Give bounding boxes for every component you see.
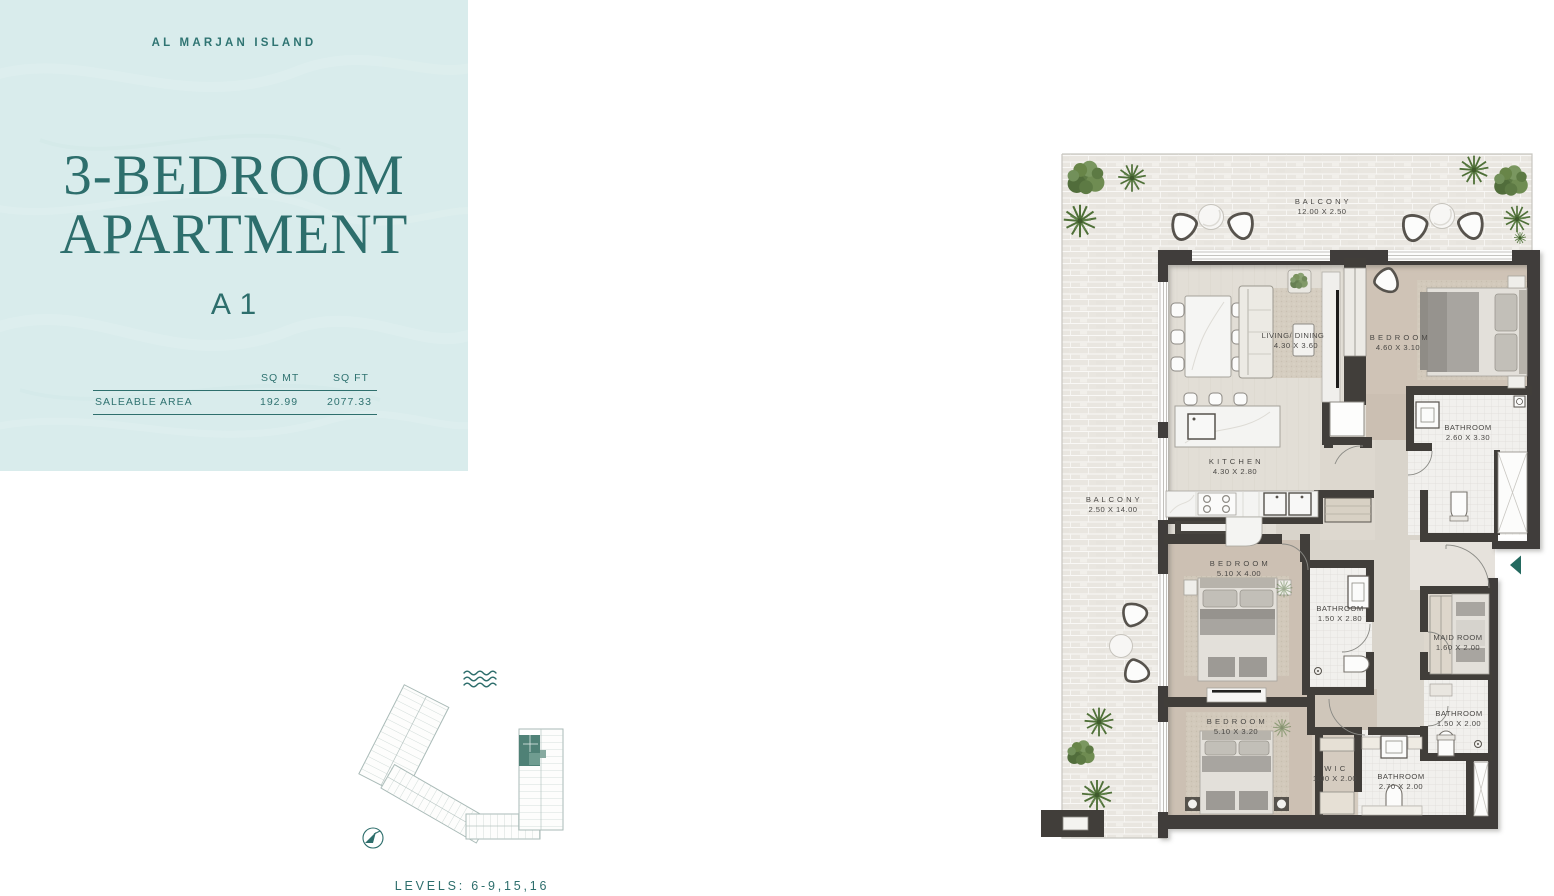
- svg-text:B A L C O N Y: B A L C O N Y: [1295, 197, 1349, 206]
- svg-text:BATHROOM: BATHROOM: [1377, 772, 1424, 781]
- svg-text:MAID ROOM: MAID ROOM: [1433, 633, 1482, 642]
- svg-text:2.70 X 2.00: 2.70 X 2.00: [1379, 782, 1423, 791]
- svg-text:B E D R O O M: B E D R O O M: [1207, 717, 1265, 726]
- svg-text:1.60 X 2.00: 1.60 X 2.00: [1436, 643, 1480, 652]
- svg-text:1.50 X 2.80: 1.50 X 2.80: [1318, 614, 1362, 623]
- svg-text:1.00 X 2.00: 1.00 X 2.00: [1313, 774, 1357, 783]
- svg-text:4.30 X 2.80: 4.30 X 2.80: [1213, 467, 1257, 476]
- svg-text:BATHROOM: BATHROOM: [1444, 423, 1491, 432]
- svg-text:BATHROOM: BATHROOM: [1435, 709, 1482, 718]
- svg-text:2.60 X 3.30: 2.60 X 3.30: [1446, 433, 1490, 442]
- svg-text:5.10 X 4.00: 5.10 X 4.00: [1217, 569, 1261, 578]
- svg-text:2.50 X 14.00: 2.50 X 14.00: [1088, 505, 1137, 514]
- svg-text:W I C: W I C: [1324, 764, 1345, 773]
- svg-text:12.00 X 2.50: 12.00 X 2.50: [1297, 207, 1346, 216]
- svg-text:BATHROOM: BATHROOM: [1316, 604, 1363, 613]
- svg-text:4.30 X 3.60: 4.30 X 3.60: [1274, 341, 1318, 350]
- svg-text:1.50 X 2.00: 1.50 X 2.00: [1437, 719, 1481, 728]
- svg-text:B E D R O O M: B E D R O O M: [1210, 559, 1268, 568]
- svg-text:B A L C O N Y: B A L C O N Y: [1086, 495, 1140, 504]
- svg-text:LIVING/ DINING: LIVING/ DINING: [1262, 331, 1325, 340]
- svg-text:B E D R O O M: B E D R O O M: [1370, 333, 1428, 342]
- svg-text:K I T C H E N: K I T C H E N: [1209, 457, 1261, 466]
- svg-text:4.60 X 3.10: 4.60 X 3.10: [1376, 343, 1420, 352]
- svg-text:5.10 X 3.20: 5.10 X 3.20: [1214, 727, 1258, 736]
